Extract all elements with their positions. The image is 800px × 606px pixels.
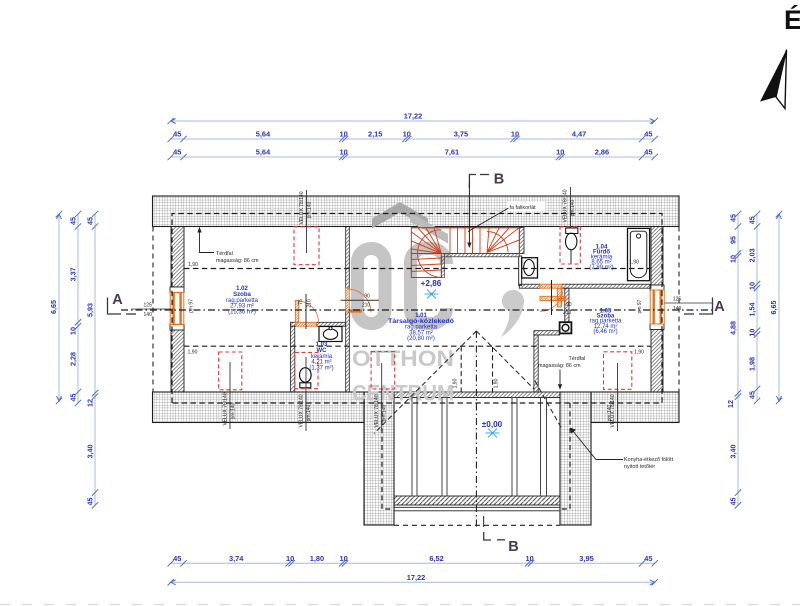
svg-text:fa falikorlát: fa falikorlát [510,205,537,211]
svg-text:17,22: 17,22 [407,573,426,582]
svg-text:1,54: 1,54 [748,303,757,317]
svg-text:CENTRUM: CENTRUM [352,381,454,406]
svg-text:pm 97: pm 97 [637,299,643,313]
svg-text:±0,00: ±0,00 [482,420,503,429]
svg-text:2,86: 2,86 [595,148,609,157]
svg-text:125: 125 [144,303,153,309]
svg-text:95: 95 [729,236,738,244]
svg-text:10: 10 [339,130,347,139]
svg-text:(20,80 m²): (20,80 m²) [407,336,435,342]
svg-text:OTTHON: OTTHON [352,346,454,371]
svg-text:90: 90 [364,294,370,300]
svg-text:75: 75 [298,299,304,305]
svg-text:nyitott tetőtér: nyitott tetőtér [624,464,655,470]
svg-text:10: 10 [748,282,757,290]
svg-text:pm 97: pm 97 [189,299,195,313]
svg-text:140: 140 [673,306,682,312]
svg-text:Térdfal: Térdfal [216,251,233,257]
svg-text:45: 45 [86,498,95,506]
svg-text:pm:140: pm:140 [607,404,613,421]
svg-text:4,47: 4,47 [572,130,586,139]
svg-text:125: 125 [673,297,682,303]
svg-text:VELUX 78/140: VELUX 78/140 [299,191,305,224]
svg-text:(1,37 m²): (1,37 m²) [309,365,333,371]
svg-text:2,15: 2,15 [368,130,382,139]
svg-text:(15,30 m²): (15,30 m²) [228,309,256,315]
svg-text:10: 10 [729,255,738,263]
svg-text:45: 45 [173,148,181,157]
svg-text:6,65: 6,65 [769,301,778,315]
svg-text:3,40: 3,40 [729,445,738,459]
svg-text:A: A [714,299,725,315]
svg-text:45: 45 [748,391,757,399]
svg-text:10: 10 [556,148,564,157]
svg-text:10: 10 [748,329,757,337]
svg-text:12: 12 [726,400,735,408]
svg-text:210: 210 [563,310,572,316]
svg-text:45: 45 [86,217,95,225]
svg-text:45: 45 [729,214,738,222]
svg-text:A: A [112,292,123,308]
svg-text:45: 45 [173,130,181,139]
svg-text:pm:140: pm:140 [306,404,312,421]
svg-text:210: 210 [362,302,371,308]
svg-text:12: 12 [86,399,95,407]
svg-text:45: 45 [748,216,757,224]
svg-text:VELUX 78/140: VELUX 78/140 [299,394,305,427]
svg-text:1,90: 1,90 [634,350,644,356]
svg-text:4,88: 4,88 [729,321,738,335]
svg-text:17,22: 17,22 [404,112,423,121]
svg-text:5,64: 5,64 [256,148,271,157]
svg-text:45: 45 [69,217,78,225]
svg-text:6,52: 6,52 [429,554,443,563]
svg-text:10: 10 [286,554,294,563]
svg-text:2,28: 2,28 [69,352,78,366]
svg-text:10: 10 [339,148,347,157]
svg-text:É: É [784,4,800,35]
svg-text:1,90: 1,90 [494,378,500,388]
svg-text:6,65: 6,65 [49,300,58,314]
svg-text:pm:140: pm:140 [307,201,313,218]
svg-text:45: 45 [644,554,652,563]
svg-text:10: 10 [511,130,519,139]
svg-text:3,75: 3,75 [454,130,468,139]
svg-text:(7,89 m²): (7,89 m²) [589,265,613,271]
svg-text:45: 45 [173,554,181,563]
svg-text:3,40: 3,40 [86,445,95,459]
svg-text:2,03: 2,03 [748,248,757,262]
svg-text:1,80: 1,80 [310,554,324,563]
svg-text:VELUX 78/140: VELUX 78/140 [374,394,380,427]
svg-text:3,95: 3,95 [579,554,593,563]
svg-text:1,90: 1,90 [453,378,459,388]
svg-text:+2,86: +2,86 [421,279,442,288]
svg-text:B: B [494,172,504,188]
svg-text:5,93: 5,93 [86,303,95,317]
svg-text:90: 90 [566,302,572,308]
svg-text:1,90: 1,90 [188,350,198,356]
svg-text:3,37: 3,37 [69,267,78,281]
svg-text:10: 10 [525,554,533,563]
svg-text:45: 45 [69,394,78,402]
svg-text:pm:140: pm:140 [231,402,237,419]
svg-text:B: B [508,539,518,555]
svg-text:magasság: 86 cm: magasság: 86 cm [538,363,581,369]
svg-text:1,98: 1,98 [748,357,757,371]
svg-text:VELUX 78/140: VELUX 78/140 [223,392,229,425]
svg-text:magasság: 86 cm: magasság: 86 cm [216,258,259,264]
svg-text:1,90: 1,90 [188,262,198,268]
svg-text:Térdfal: Térdfal [569,356,586,362]
svg-text:1,90: 1,90 [629,260,639,266]
svg-text:210: 210 [306,299,312,308]
svg-text:Konyha-étkező fölött: Konyha-étkező fölött [624,457,674,463]
svg-text:45: 45 [644,130,652,139]
svg-text:10: 10 [339,554,347,563]
svg-text:(6,46 m²): (6,46 m²) [593,329,617,335]
svg-text:45: 45 [729,498,738,506]
svg-text:5,64: 5,64 [256,130,271,139]
svg-text:45: 45 [644,148,652,157]
svg-text:140: 140 [144,312,153,318]
svg-text:7,61: 7,61 [445,148,459,157]
svg-text:VELUX 78/140: VELUX 78/140 [563,189,569,222]
svg-text:3,74: 3,74 [229,554,244,563]
svg-text:10: 10 [69,327,78,335]
svg-text:10: 10 [403,130,411,139]
